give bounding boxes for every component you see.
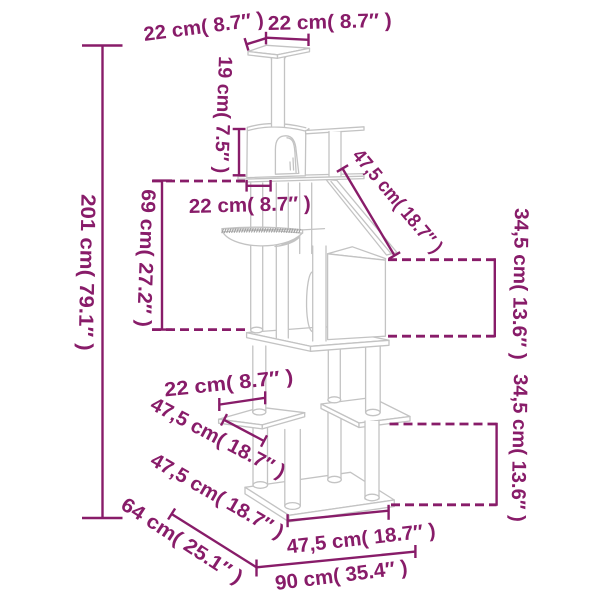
svg-text:22 cm( 8.7″ ): 22 cm( 8.7″ ) [189,193,311,218]
svg-text:201 cm( 79.1″ ): 201 cm( 79.1″ ) [74,194,100,351]
svg-text:22 cm( 8.7″ ): 22 cm( 8.7″ ) [268,10,392,35]
svg-text:34,5 cm( 13.6″ ): 34,5 cm( 13.6″ ) [506,374,531,522]
svg-text:19 cm( 7.5″ ): 19 cm( 7.5″ ) [210,56,236,174]
svg-text:34,5 cm( 13.6″ ): 34,5 cm( 13.6″ ) [507,208,532,360]
